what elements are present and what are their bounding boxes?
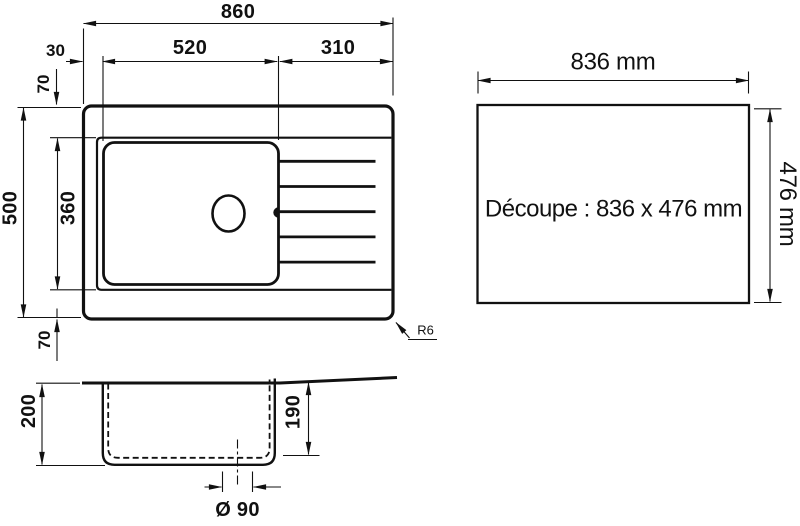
dim-drain-label: Ø 90 [215, 499, 260, 521]
section-extension-lines [36, 383, 320, 492]
dim-360-group: 360 [58, 139, 80, 290]
counter-top-line [82, 378, 397, 384]
dim-310-label: 310 [321, 37, 355, 59]
dim-190-label: 190 [283, 395, 305, 429]
dim-70-bottom-label: 70 [35, 331, 54, 350]
dim-200-label: 200 [18, 394, 40, 428]
dim-70-top-label: 70 [34, 75, 53, 94]
dim-70-bottom-group: 70 [35, 320, 57, 362]
section-view: 200 190 Ø 90 [18, 378, 397, 522]
dim-860-group: 860 [84, 1, 394, 24]
technical-drawing-page: 860 30 520 310 500 70 360 70 R6 [0, 0, 800, 526]
dim-500-group: 500 [0, 108, 24, 317]
corner-radius-callout: R6 [396, 323, 437, 340]
dim-drain-group: Ø 90 [205, 487, 282, 521]
overflow-notch [273, 207, 278, 217]
dim-836-label: 836 mm [571, 49, 656, 76]
dim-860-label: 860 [221, 1, 255, 23]
dim-836-group: 836 mm [478, 49, 749, 94]
dim-476-label: 476 mm [774, 162, 800, 247]
sink-technical-drawing: 860 30 520 310 500 70 360 70 R6 [0, 0, 800, 526]
bowl-section-outer [103, 379, 275, 465]
bowl-outline [104, 143, 279, 285]
dim-520-group: 520 [103, 37, 278, 62]
dim-476-group: 476 mm [754, 109, 800, 303]
corner-radius-label: R6 [417, 323, 434, 338]
drain-hole [213, 196, 245, 232]
cutout-caption: Découpe : 836 x 476 mm [485, 196, 742, 223]
dim-30-group: 30 [46, 41, 82, 62]
dim-310-group: 310 [280, 37, 393, 62]
dim-200-group: 200 [18, 385, 42, 465]
dim-30-label: 30 [46, 41, 65, 60]
top-view [84, 106, 394, 319]
cutout-panel: Découpe : 836 x 476 mm 836 mm 476 mm [478, 49, 800, 304]
dim-500-label: 500 [0, 191, 22, 225]
top-view-extension-lines [18, 18, 394, 318]
bowl-section-inner-hidden [108, 380, 269, 458]
drainer-grooves [279, 161, 376, 262]
dim-190-group: 190 [283, 383, 309, 455]
dim-360-label: 360 [58, 191, 80, 225]
dim-520-label: 520 [173, 37, 207, 59]
dim-70-top-group: 70 [34, 69, 57, 105]
